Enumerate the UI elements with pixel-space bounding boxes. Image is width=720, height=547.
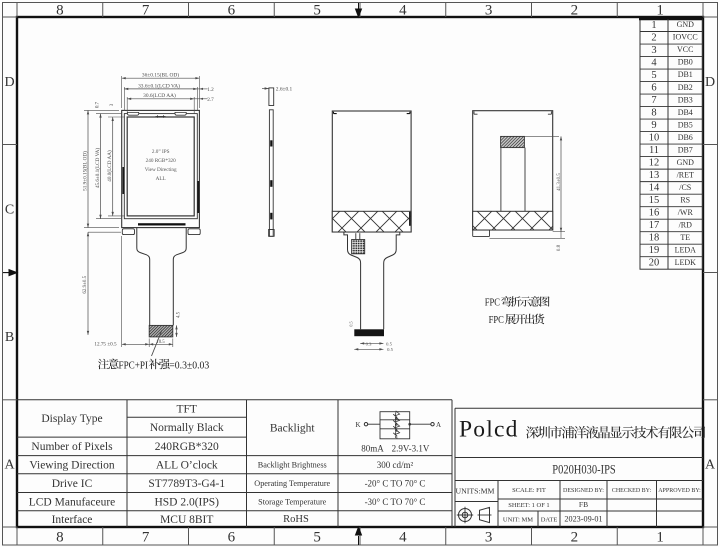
svg-text:UNITS:MM: UNITS:MM (456, 486, 495, 495)
svg-text:FPC: FPC (485, 298, 500, 309)
svg-text:DB3: DB3 (678, 95, 693, 104)
svg-text:B: B (5, 330, 14, 345)
svg-text:View Directing: View Directing (145, 167, 177, 173)
svg-text:UNIT: MM: UNIT: MM (503, 517, 533, 524)
svg-text:A: A (436, 421, 441, 429)
svg-text:1: 1 (656, 3, 664, 19)
svg-text:51.9±0.15(BL OD): 51.9±0.15(BL OD) (81, 151, 88, 191)
svg-text:10.5: 10.5 (156, 340, 165, 345)
svg-text:7: 7 (142, 530, 150, 546)
svg-text:2.0” IPS: 2.0” IPS (152, 149, 170, 155)
svg-text:15: 15 (649, 195, 660, 206)
svg-text:9: 9 (651, 120, 656, 131)
svg-text:2.9V-3.1V: 2.9V-3.1V (392, 444, 430, 454)
svg-text:/CS: /CS (679, 183, 691, 192)
svg-text:0.7: 0.7 (96, 101, 101, 108)
svg-text:13: 13 (649, 170, 660, 181)
svg-text:Display Type: Display Type (41, 413, 102, 425)
svg-text:Operating Temperature: Operating Temperature (254, 479, 330, 488)
svg-text:12.75 ±0.5: 12.75 ±0.5 (94, 341, 117, 347)
svg-text:TFT: TFT (177, 403, 197, 415)
svg-text:-30° C TO 70° C: -30° C TO 70° C (365, 497, 426, 507)
svg-text:FPC: FPC (489, 315, 504, 326)
svg-text:6: 6 (228, 3, 236, 19)
svg-text:20: 20 (649, 258, 660, 269)
svg-text:Number of Pixels: Number of Pixels (31, 441, 113, 453)
svg-text:4: 4 (651, 58, 657, 69)
svg-text:12: 12 (649, 158, 660, 169)
svg-text:D: D (705, 75, 715, 90)
svg-text:K: K (355, 421, 360, 429)
svg-text:DB1: DB1 (678, 70, 693, 79)
svg-text:5: 5 (313, 3, 321, 19)
svg-text:Normally Black: Normally Black (150, 422, 224, 434)
svg-text:0.3: 0.3 (366, 341, 372, 346)
svg-text:LEDK: LEDK (675, 258, 697, 267)
svg-text:/RD: /RD (679, 220, 693, 229)
svg-text:=0.3±0.03: =0.3±0.03 (169, 360, 209, 371)
svg-text:16: 16 (649, 208, 660, 219)
svg-text:3: 3 (485, 530, 493, 546)
svg-text:D: D (4, 75, 14, 90)
svg-text:DATE: DATE (541, 517, 558, 524)
svg-text:0.5: 0.5 (349, 321, 354, 326)
svg-text:240 RGB*320: 240 RGB*320 (146, 158, 177, 164)
svg-text:LEDA: LEDA (675, 245, 697, 254)
svg-text:DB7: DB7 (678, 145, 693, 154)
svg-text:7: 7 (651, 95, 656, 106)
svg-text:P020H030-IPS: P020H030-IPS (552, 462, 616, 476)
svg-text:4: 4 (399, 530, 407, 546)
svg-text:8: 8 (56, 3, 64, 19)
svg-text:2: 2 (571, 3, 579, 19)
svg-text:RS: RS (680, 195, 690, 204)
svg-text:4.5: 4.5 (177, 311, 182, 318)
svg-text:DB2: DB2 (678, 83, 693, 92)
svg-text:8: 8 (56, 530, 64, 546)
svg-text:2: 2 (651, 33, 656, 44)
svg-text:6: 6 (228, 530, 236, 546)
svg-text:A: A (705, 457, 716, 472)
svg-text:DB5: DB5 (678, 120, 693, 129)
svg-text:2.6±0.1: 2.6±0.1 (276, 86, 293, 92)
svg-text:80mA: 80mA (361, 444, 384, 454)
svg-text:2: 2 (571, 530, 579, 546)
svg-text:RoHS: RoHS (283, 514, 309, 525)
svg-text:DESIGNED BY:: DESIGNED BY: (563, 488, 604, 494)
svg-text:GND: GND (677, 20, 695, 29)
svg-text:ALL: ALL (156, 176, 166, 182)
svg-text:Polcd: Polcd (459, 417, 519, 443)
svg-text:17: 17 (649, 220, 660, 231)
svg-text:45.6±0.1(LCD VA): 45.6±0.1(LCD VA) (94, 148, 101, 189)
svg-text:19: 19 (649, 245, 660, 256)
svg-text:MCU 8BIT: MCU 8BIT (160, 514, 213, 526)
svg-text:41.3±0.5: 41.3±0.5 (557, 173, 562, 191)
svg-text:Drive IC: Drive IC (52, 478, 93, 490)
svg-text:0.5: 0.5 (386, 341, 392, 346)
svg-text:CHECKED BY:: CHECKED BY: (612, 488, 652, 494)
svg-text:1: 1 (651, 20, 656, 31)
svg-text:11: 11 (649, 145, 659, 156)
svg-text:300 cd/m²: 300 cd/m² (377, 460, 414, 470)
svg-text:VCC: VCC (677, 45, 693, 54)
svg-text:GND: GND (677, 158, 695, 167)
svg-text:1: 1 (656, 530, 664, 546)
svg-text:5: 5 (651, 70, 656, 81)
svg-text:Backlight: Backlight (270, 422, 316, 434)
svg-text:FB: FB (579, 500, 588, 509)
svg-text:/WR: /WR (678, 208, 694, 217)
svg-text:/RET: /RET (677, 170, 694, 179)
svg-text:Viewing Direction: Viewing Direction (29, 460, 114, 472)
svg-text:10: 10 (649, 133, 660, 144)
svg-text:40.0(LCD AA): 40.0(LCD AA) (106, 150, 113, 182)
svg-text:A: A (4, 457, 15, 472)
svg-text:C: C (5, 203, 14, 218)
svg-text:FPC+PI: FPC+PI (119, 360, 149, 371)
svg-text:ALL O’clock: ALL O’clock (156, 460, 218, 472)
svg-text:SCALE: FIT: SCALE: FIT (512, 487, 546, 494)
svg-text:5: 5 (313, 530, 321, 546)
svg-text:30.6(LCD AA): 30.6(LCD AA) (143, 92, 176, 99)
svg-text:0.5: 0.5 (387, 347, 393, 352)
svg-text:36±0.15(BL OD): 36±0.15(BL OD) (142, 72, 179, 79)
svg-text:3: 3 (651, 45, 656, 56)
svg-text:Storage Temperature: Storage Temperature (258, 497, 327, 506)
svg-text:4: 4 (399, 3, 407, 19)
svg-text:-20° C TO 70° C: -20° C TO 70° C (365, 478, 426, 488)
svg-text:7: 7 (142, 3, 150, 19)
svg-text:LCD Manufaceure: LCD Manufaceure (29, 497, 116, 509)
svg-text:33.6±0.1(LCD VA): 33.6±0.1(LCD VA) (138, 82, 180, 89)
svg-text:Interface: Interface (52, 514, 93, 526)
svg-text:DB4: DB4 (678, 108, 693, 117)
svg-text:IOVCC: IOVCC (673, 33, 698, 42)
svg-text:TE: TE (680, 233, 690, 242)
svg-text:8: 8 (651, 108, 656, 119)
svg-text:2023-09-01: 2023-09-01 (564, 514, 602, 523)
svg-text:0.8: 0.8 (557, 244, 562, 251)
svg-text:1.2: 1.2 (207, 87, 214, 93)
svg-text:240RGB*320: 240RGB*320 (155, 441, 219, 453)
svg-text:Backlight Brightness: Backlight Brightness (258, 461, 327, 470)
svg-text:APPROVED BY:: APPROVED BY: (658, 488, 701, 494)
svg-text:2.7: 2.7 (207, 97, 214, 103)
svg-text:DB6: DB6 (678, 133, 693, 142)
svg-text:14: 14 (649, 183, 660, 194)
svg-text:62.9±0.5: 62.9±0.5 (83, 275, 88, 293)
svg-text:18: 18 (649, 233, 660, 244)
svg-text:6: 6 (651, 83, 656, 94)
svg-text:ST7789T3-G4-1: ST7789T3-G4-1 (148, 478, 225, 490)
svg-text:3: 3 (485, 3, 493, 19)
svg-text:DB0: DB0 (678, 58, 693, 67)
svg-text:HSD 2.0(IPS): HSD 2.0(IPS) (154, 497, 219, 509)
svg-text:SHEET: 1 OF 1: SHEET: 1 OF 1 (508, 502, 549, 509)
